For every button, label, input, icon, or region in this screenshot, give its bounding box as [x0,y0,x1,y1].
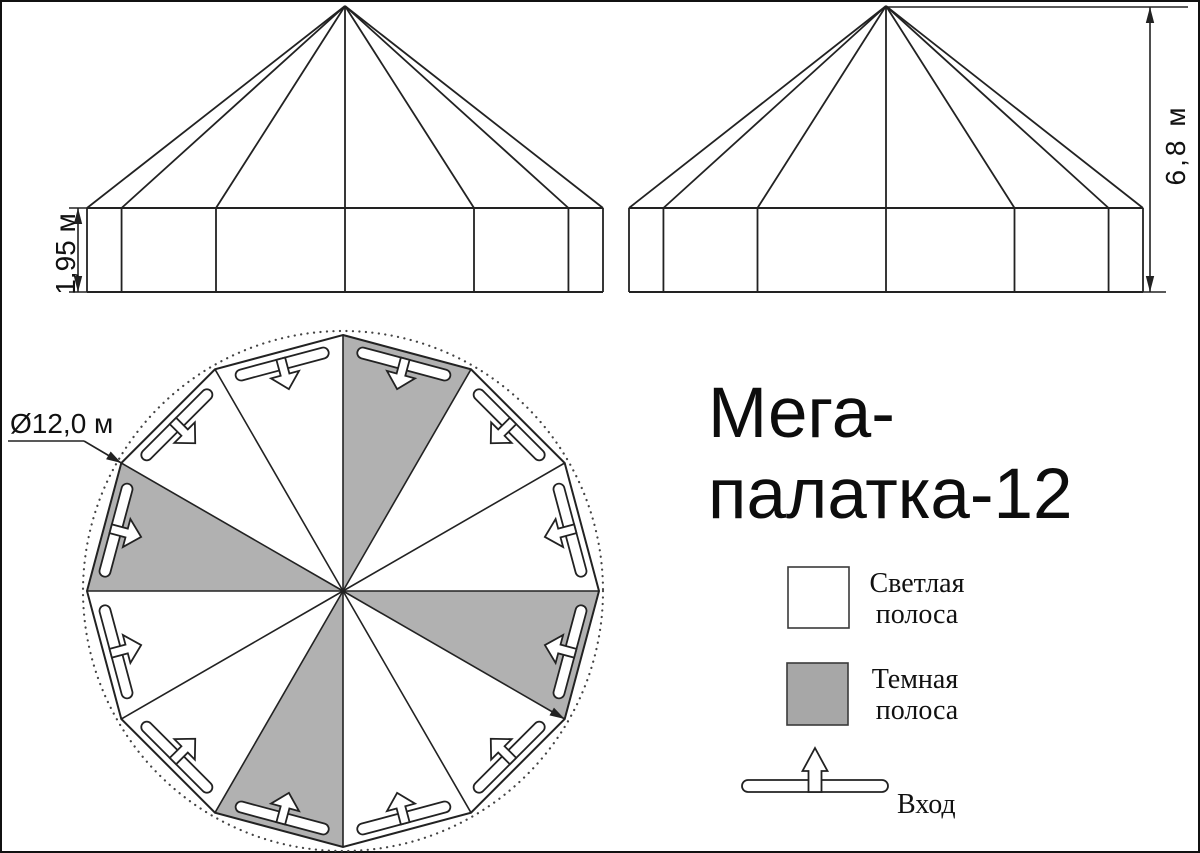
roof-seam [663,6,886,208]
drawing-sheet: 1,95 м 6,8 м Ø12,0 м Светлая полоса Темн… [0,0,1200,853]
front-elevation-view [87,6,603,292]
roof-seam [886,6,1143,208]
roof-seam [886,6,1109,208]
wall-height-label: 1,95 м [50,213,81,295]
roof-seam [629,6,886,208]
legend-dark-label-line1: Темная [872,664,959,695]
legend-entrance-label: Вход [897,789,956,820]
side-elevation-view [629,6,1143,292]
diameter-arrowhead [106,452,121,463]
legend-dark-label-line2: полоса [876,695,959,726]
roof-seam [345,6,568,208]
roof-seam [345,6,474,208]
title-line2: палатка-12 [708,454,1073,535]
legend-symbols [742,567,888,792]
legend-light-label-line2: полоса [876,599,959,630]
plan-view [83,331,603,851]
roof-seam [758,6,887,208]
dim-arrowhead [1146,7,1154,23]
title-line1: Мега- [708,373,1073,454]
legend-light-swatch [788,567,849,628]
roof-seam [216,6,345,208]
legend-light-label-line1: Светлая [870,568,965,599]
roof-seam [345,6,603,208]
dim-arrowhead [1146,276,1154,292]
legend-dark-swatch [787,663,848,725]
roof-seam [87,6,345,208]
roof-seam [886,6,1015,208]
diameter-label: Ø12,0 м [10,408,113,439]
roof-seam [122,6,345,208]
drawing-title: Мега- палатка-12 [708,373,1073,535]
total-height-label: 6,8 м [1160,105,1191,186]
